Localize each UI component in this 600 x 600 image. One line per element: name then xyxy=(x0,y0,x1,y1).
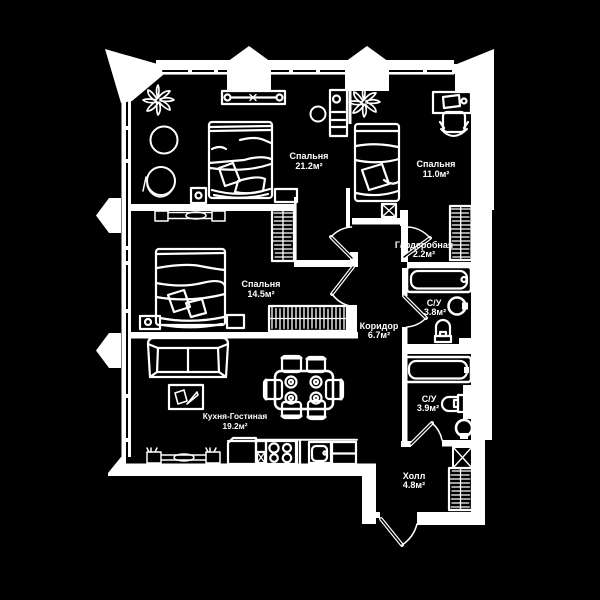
svg-text:11.0м²: 11.0м² xyxy=(423,169,450,179)
svg-text:14.5м²: 14.5м² xyxy=(247,289,274,299)
svg-text:2.2м²: 2.2м² xyxy=(413,249,435,259)
svg-text:21.2м²: 21.2м² xyxy=(295,161,322,171)
svg-text:Спальня: Спальня xyxy=(242,279,281,289)
svg-text:Кухня-Гостиная: Кухня-Гостиная xyxy=(203,411,268,421)
svg-text:19.2м²: 19.2м² xyxy=(222,421,247,431)
svg-text:4.8м²: 4.8м² xyxy=(403,480,425,490)
svg-text:3.9м²: 3.9м² xyxy=(417,403,439,413)
svg-text:6.7м²: 6.7м² xyxy=(368,330,390,340)
svg-text:Спальня: Спальня xyxy=(417,159,456,169)
svg-text:Спальня: Спальня xyxy=(290,151,329,161)
svg-text:3.8м²: 3.8м² xyxy=(424,307,446,317)
